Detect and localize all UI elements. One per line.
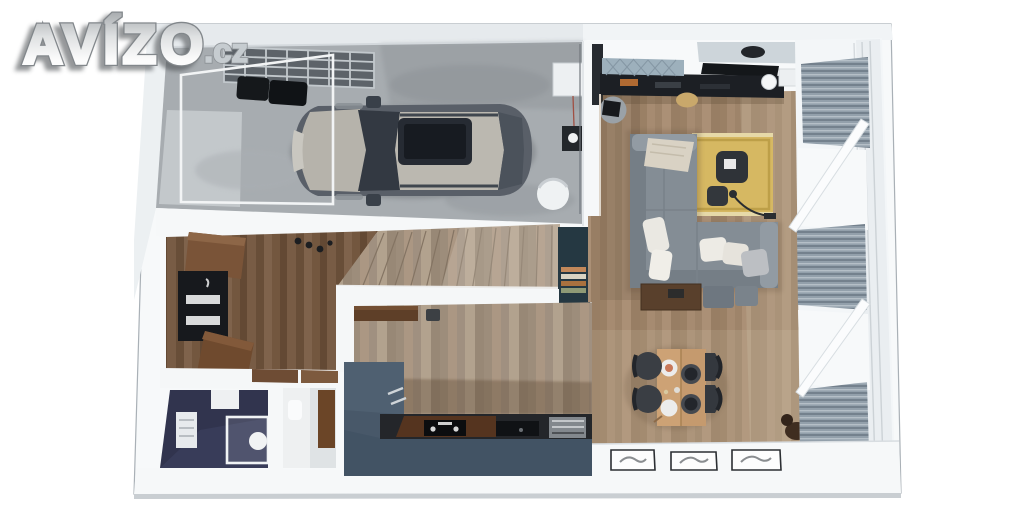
svg-text:AVÍZO: AVÍZO: [23, 13, 207, 75]
svg-text:.cz: .cz: [204, 32, 248, 69]
